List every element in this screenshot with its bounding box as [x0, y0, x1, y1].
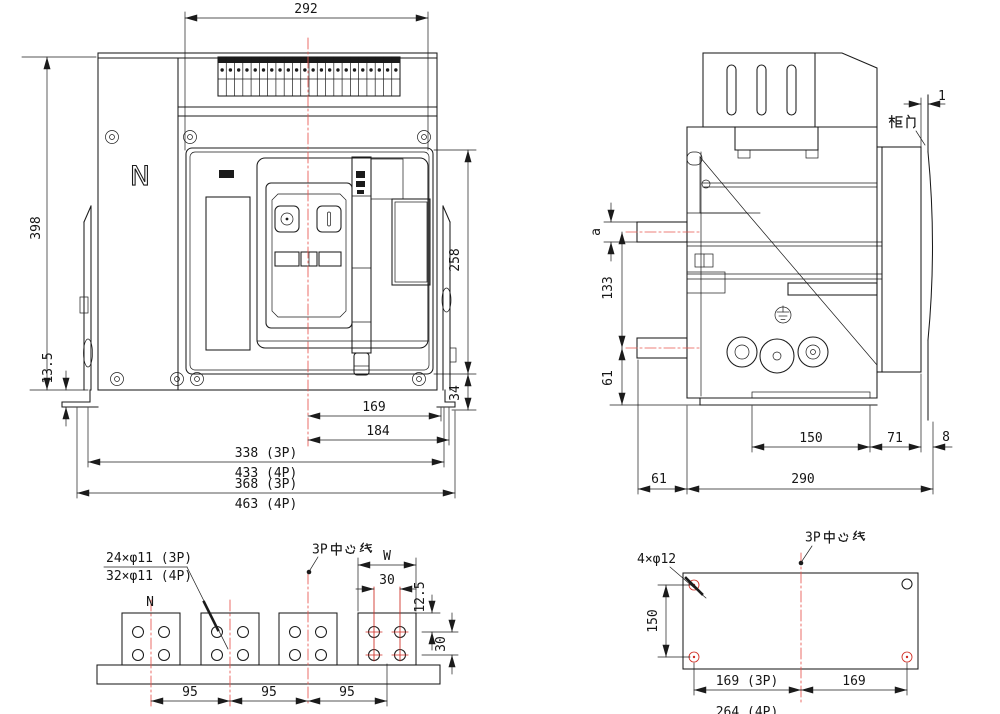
body-top-profile	[815, 53, 877, 398]
busbar-pad	[358, 613, 416, 665]
dim-w: W	[383, 549, 391, 564]
dim-338-3p: 338 (3P)	[235, 446, 298, 461]
fascia	[882, 147, 921, 372]
dim-pitch-3: 95	[339, 685, 355, 700]
dim-264-4p: 264 (4P)	[716, 705, 779, 714]
bolt-hole	[290, 650, 301, 661]
dim-290: 290	[791, 472, 814, 487]
dim-34: 34	[448, 385, 463, 401]
left-rail	[80, 206, 93, 390]
label-holes-3p: 24×φ11 (3P)	[106, 551, 192, 566]
mounting-rail	[752, 392, 870, 398]
dim-133: 133	[601, 276, 616, 299]
trip-unit-window	[392, 199, 430, 285]
dim-169-right: 169	[842, 674, 865, 689]
vent-slot	[787, 65, 796, 115]
vent-slot	[727, 65, 736, 115]
indicator-window-left	[275, 252, 299, 266]
front-view	[62, 38, 456, 446]
svg-text:3P: 3P	[805, 530, 821, 545]
side-view	[626, 53, 933, 420]
neutral-pole-label: N	[130, 161, 150, 192]
screw-icon	[106, 131, 119, 144]
terminal-n-label: N	[146, 595, 154, 610]
dim-30-vert: 30	[434, 636, 449, 652]
dim-292: 292	[294, 2, 317, 17]
bolt-hole	[290, 627, 301, 638]
dim-169-3p: 169 (3P)	[716, 674, 779, 689]
breaker-body-outline	[98, 53, 437, 390]
svg-text:3P: 3P	[312, 542, 328, 557]
panel-screws	[106, 131, 431, 386]
rating-label-window	[206, 197, 250, 350]
dim-258: 258	[448, 248, 463, 271]
bolt-hole	[316, 650, 327, 661]
secondary-terminal-strip	[218, 57, 400, 96]
screw-icon	[111, 373, 124, 386]
handle-tip	[354, 353, 369, 375]
mounting-plate	[683, 573, 918, 669]
dim-184: 184	[366, 424, 390, 439]
mechanism-hole	[798, 337, 828, 367]
busbar-base-plate	[97, 665, 440, 684]
left-foot	[62, 390, 98, 407]
bolt-hole	[212, 650, 223, 661]
dim-169: 169	[362, 400, 385, 415]
brand-mark	[219, 170, 234, 178]
bolt-hole	[159, 650, 170, 661]
label-holes-phi12: 4×φ12	[637, 552, 676, 567]
centerline-label-terminal: 3P	[312, 542, 372, 557]
drawing-canvas: 292 398 13.5 258 34 169 184 338 (3P) 433…	[0, 0, 1000, 714]
cabinet-door-line	[928, 95, 933, 420]
bolt-hole	[238, 650, 249, 661]
mounting-hole	[902, 579, 912, 589]
dim-398: 398	[29, 216, 44, 239]
dim-150-depth: 150	[799, 431, 822, 446]
mounting-holes-red	[689, 580, 912, 662]
bolt-hole	[159, 627, 170, 638]
dim-368-3p: 368 (3P)	[235, 477, 298, 492]
centerline-label-mounting: 3P	[805, 530, 865, 545]
ground-symbol	[775, 306, 791, 323]
dim-8: 8	[942, 430, 950, 445]
dim-30-horiz: 30	[379, 573, 395, 588]
dim-busbar-a: a	[589, 228, 604, 236]
cabinet-door-label	[889, 115, 915, 128]
front-dimensions	[22, 12, 476, 498]
dim-13-5: 13.5	[41, 352, 56, 383]
dimension-drawing: 292 398 13.5 258 34 169 184 338 (3P) 433…	[0, 0, 1000, 714]
escutcheon	[257, 158, 428, 348]
dim-71: 71	[887, 431, 903, 446]
bolt-hole	[238, 627, 249, 638]
screw-icon	[171, 373, 184, 386]
on-button-symbol	[328, 212, 331, 226]
arc-chute-cover	[703, 53, 815, 127]
mechanism-hole	[760, 339, 794, 373]
dim-pitch-1: 95	[182, 685, 198, 700]
screw-icon	[418, 131, 431, 144]
dim-12-5: 12.5	[413, 581, 428, 612]
vent-slot	[757, 65, 766, 115]
dim-door-gap: 1	[938, 89, 946, 104]
dim-61-vert: 61	[601, 370, 616, 386]
right-rail	[442, 206, 456, 390]
mechanism-hole	[727, 337, 757, 367]
dim-150-vert: 150	[646, 609, 661, 632]
dim-463-4p: 463 (4P)	[235, 497, 298, 512]
dim-61-horiz: 61	[651, 472, 667, 487]
bolt-hole	[133, 627, 144, 638]
bolt-hole	[316, 627, 327, 638]
indicator-window-right	[319, 252, 341, 266]
mounting-dimensions	[658, 546, 907, 695]
label-holes-4p: 32×φ11 (4P)	[106, 569, 192, 584]
bolt-hole	[133, 650, 144, 661]
screw-icon	[184, 131, 197, 144]
dim-pitch-2: 95	[261, 685, 277, 700]
on-button	[317, 206, 341, 232]
face-panel	[186, 148, 433, 374]
